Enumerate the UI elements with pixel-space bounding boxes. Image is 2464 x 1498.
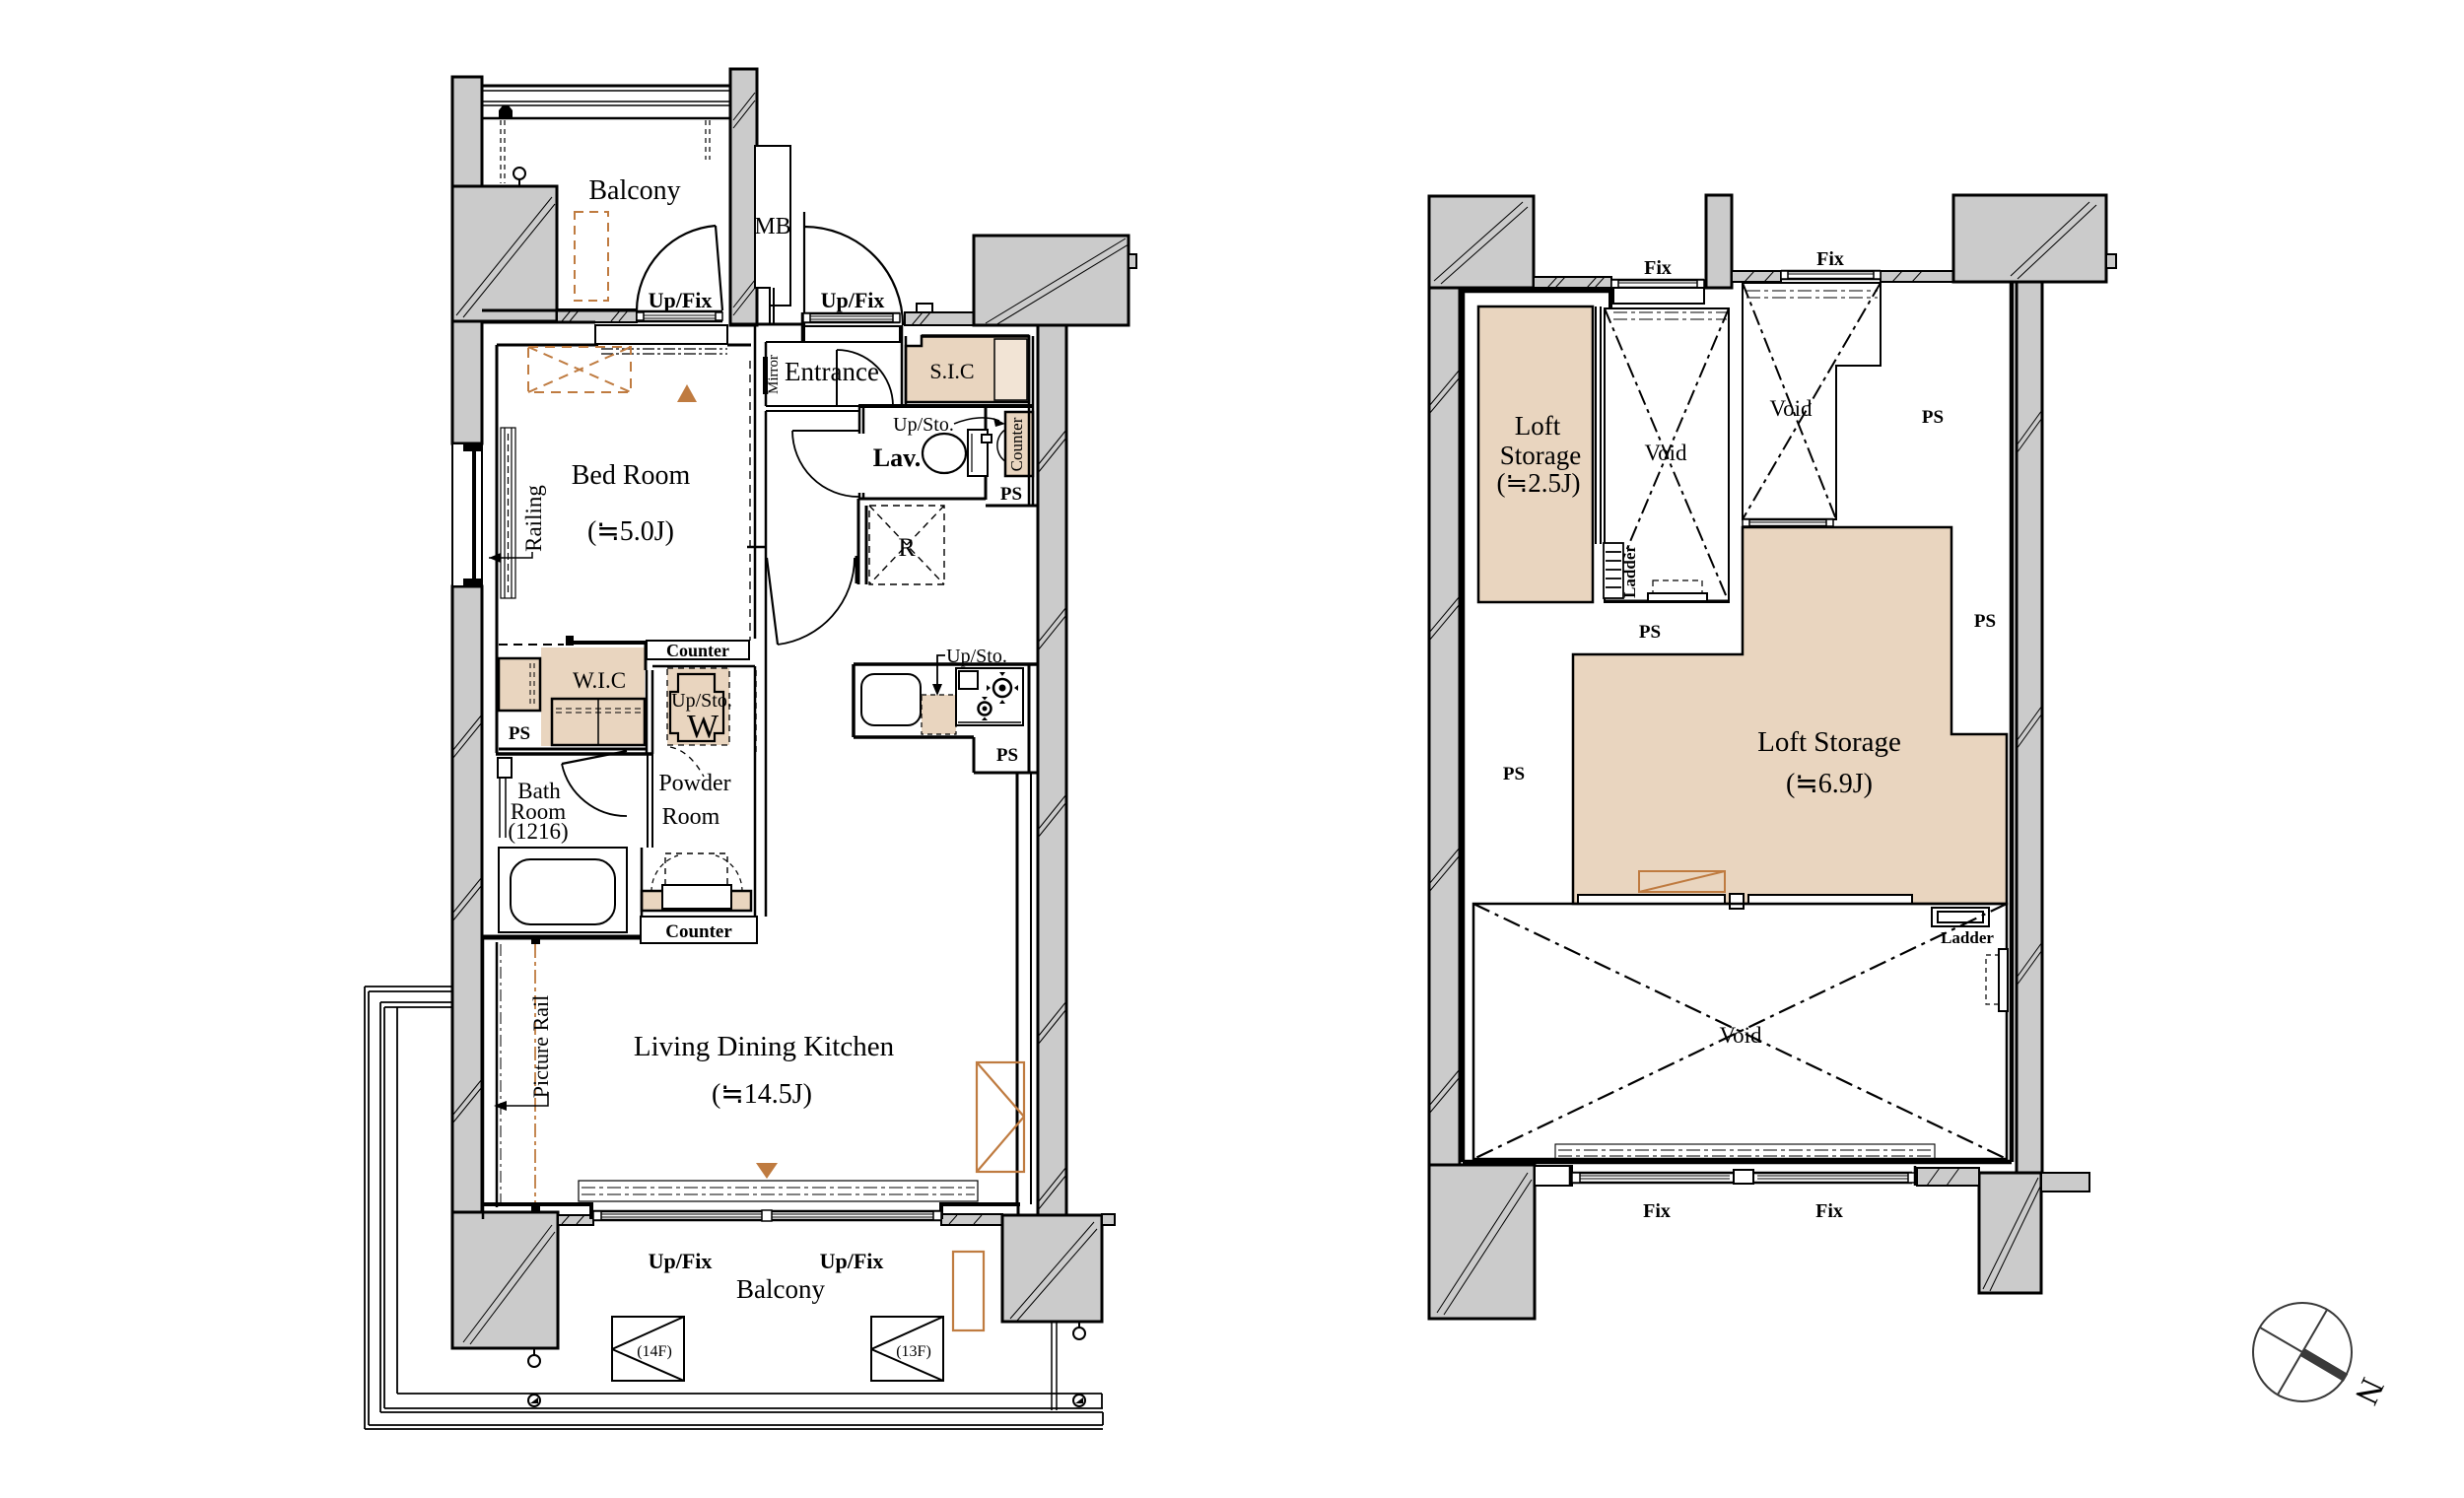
svg-text:Counter: Counter	[1007, 417, 1026, 471]
svg-text:Mirror: Mirror	[766, 355, 782, 394]
svg-text:Counter: Counter	[665, 921, 732, 942]
svg-text:Fix: Fix	[1643, 1200, 1671, 1222]
svg-text:Lav.: Lav.	[873, 443, 921, 472]
svg-text:Room: Room	[662, 804, 720, 830]
svg-text:PS: PS	[1922, 407, 1944, 428]
svg-text:Loft: Loft	[1515, 411, 1561, 441]
svg-text:S.I.C: S.I.C	[929, 359, 974, 383]
svg-text:(≒14.5J): (≒14.5J)	[712, 1079, 812, 1110]
svg-text:W: W	[687, 709, 719, 745]
svg-text:PS: PS	[1974, 611, 1996, 632]
svg-text:W.I.C: W.I.C	[573, 668, 626, 693]
svg-text:Picture Rail: Picture Rail	[528, 995, 553, 1098]
svg-text:(≒6.9J): (≒6.9J)	[1786, 769, 1873, 799]
svg-text:Up/Fix: Up/Fix	[649, 288, 713, 312]
svg-text:Balcony: Balcony	[588, 175, 680, 206]
svg-text:Living Dining Kitchen: Living Dining Kitchen	[634, 1031, 895, 1062]
svg-text:(13F): (13F)	[896, 1343, 931, 1360]
svg-text:Up/Fix: Up/Fix	[649, 1249, 713, 1273]
svg-text:Ladder: Ladder	[1941, 928, 1994, 947]
svg-text:Bed Room: Bed Room	[572, 460, 691, 491]
svg-text:Fix: Fix	[1644, 257, 1672, 279]
svg-text:Counter: Counter	[666, 641, 729, 660]
svg-text:(≒2.5J): (≒2.5J)	[1497, 468, 1581, 498]
svg-text:Up/Sto.: Up/Sto.	[893, 414, 954, 436]
svg-text:Powder: Powder	[658, 771, 730, 796]
svg-text:Up/Sto.: Up/Sto.	[946, 646, 1007, 667]
svg-text:Void: Void	[1644, 441, 1687, 465]
svg-text:PS: PS	[996, 745, 1018, 766]
svg-text:Up/Fix: Up/Fix	[821, 288, 885, 312]
svg-text:Fix: Fix	[1816, 248, 1844, 270]
svg-text:Loft Storage: Loft Storage	[1757, 726, 1901, 758]
svg-text:(1216): (1216)	[508, 819, 568, 844]
svg-text:MB: MB	[754, 214, 790, 239]
svg-text:Balcony: Balcony	[736, 1274, 825, 1304]
svg-text:Void: Void	[1719, 1023, 1762, 1048]
svg-text:Storage: Storage	[1500, 441, 1581, 470]
svg-text:R: R	[898, 533, 916, 562]
svg-text:Fix: Fix	[1815, 1200, 1843, 1222]
svg-text:PS: PS	[1639, 622, 1661, 643]
svg-text:Ladder: Ladder	[1620, 545, 1639, 598]
svg-text:PS: PS	[1000, 484, 1022, 505]
svg-text:Up/Fix: Up/Fix	[820, 1249, 884, 1273]
svg-text:Railing: Railing	[521, 485, 546, 552]
svg-text:Entrance: Entrance	[785, 357, 879, 386]
svg-text:PS: PS	[1503, 764, 1525, 784]
svg-text:PS: PS	[509, 723, 530, 744]
svg-text:(≒5.0J): (≒5.0J)	[587, 516, 674, 547]
svg-text:Void: Void	[1769, 396, 1813, 421]
svg-text:(14F): (14F)	[637, 1343, 672, 1360]
